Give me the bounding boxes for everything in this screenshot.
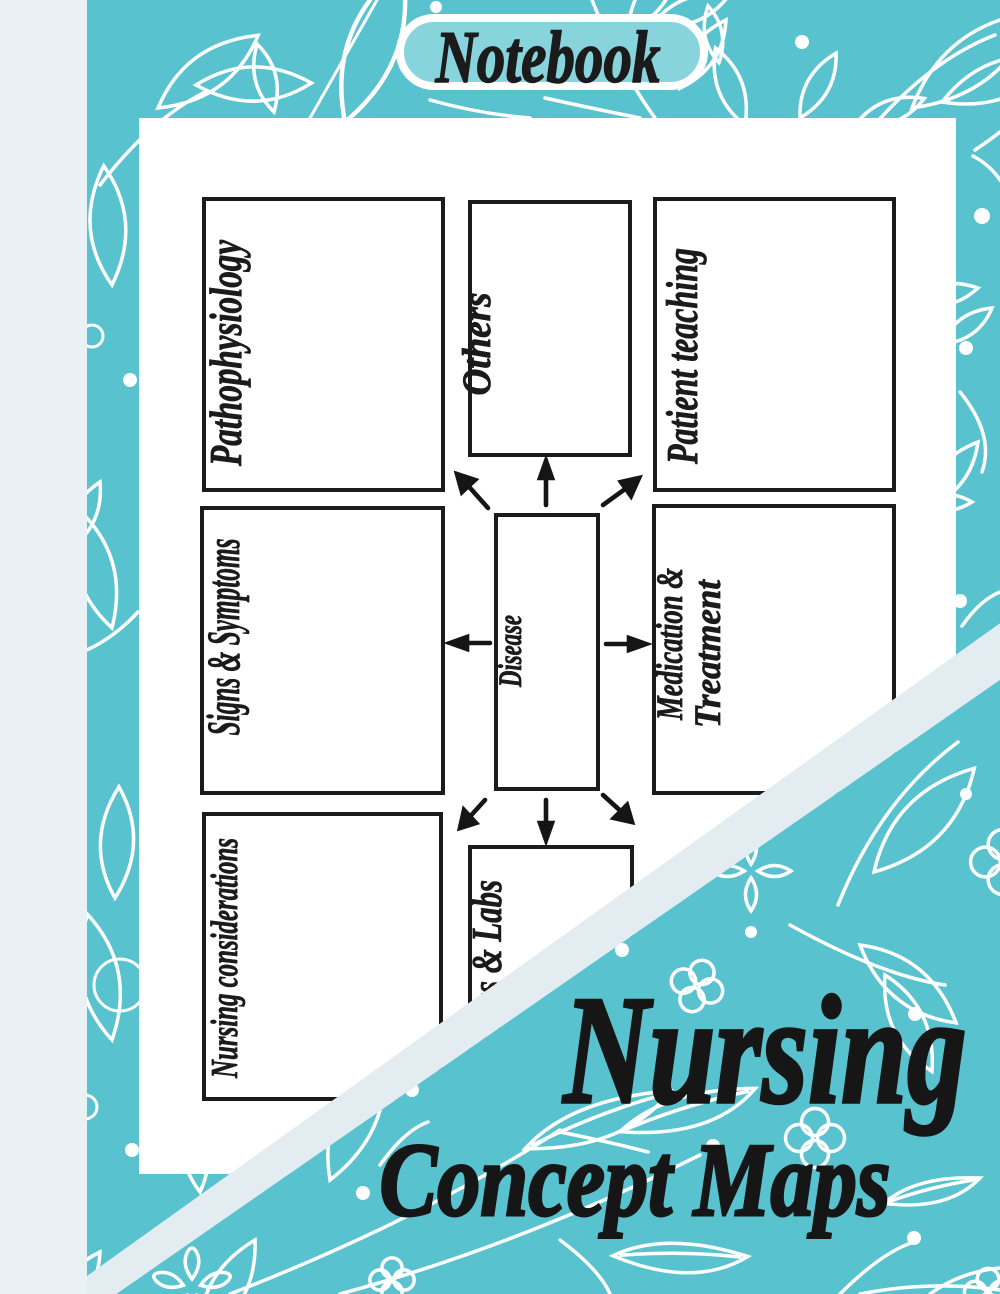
svg-text:Pathophysiology: Pathophysiology	[201, 239, 251, 466]
svg-text:Nursing considerations: Nursing considerations	[204, 838, 246, 1079]
svg-text:Disease: Disease	[493, 615, 529, 688]
svg-text:Notebook: Notebook	[435, 17, 661, 99]
svg-text:Treatment: Treatment	[688, 578, 729, 728]
svg-text:Others: Others	[454, 293, 499, 396]
svg-text:Medication &: Medication &	[650, 568, 691, 721]
svg-text:Signs & Symptoms: Signs & Symptoms	[198, 539, 250, 736]
svg-text:Patient teaching: Patient teaching	[658, 248, 707, 465]
svg-text:Concept Maps: Concept Maps	[380, 1121, 891, 1238]
svg-text:Nursing: Nursing	[562, 964, 967, 1136]
